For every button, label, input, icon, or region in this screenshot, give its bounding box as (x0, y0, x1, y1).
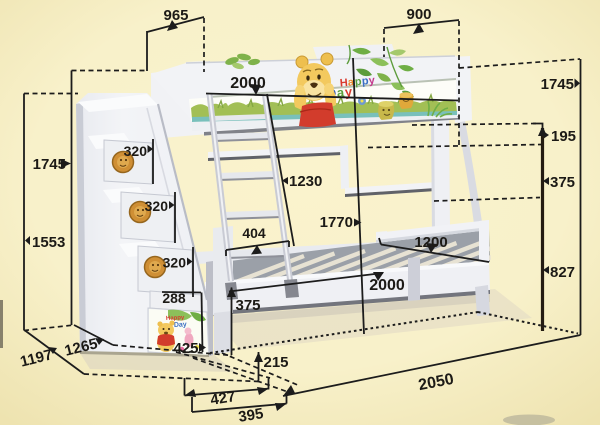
svg-text:Day: Day (174, 321, 187, 329)
svg-text:1745: 1745 (541, 76, 574, 93)
svg-text:375: 375 (550, 174, 575, 191)
svg-text:1745: 1745 (33, 156, 66, 173)
svg-text:395: 395 (237, 405, 264, 425)
svg-text:320: 320 (145, 198, 169, 214)
svg-text:2000: 2000 (230, 75, 266, 92)
svg-text:965: 965 (163, 7, 188, 24)
svg-text:320: 320 (163, 255, 187, 271)
svg-text:404: 404 (242, 225, 266, 241)
svg-text:1553: 1553 (32, 234, 65, 251)
svg-text:900: 900 (406, 6, 431, 23)
svg-text:2000: 2000 (369, 277, 405, 294)
svg-text:375: 375 (235, 297, 260, 314)
svg-text:320: 320 (124, 143, 148, 159)
svg-text:215: 215 (263, 354, 288, 371)
svg-text:195: 195 (551, 128, 576, 145)
svg-text:1200: 1200 (414, 234, 447, 251)
svg-text:1230: 1230 (289, 173, 322, 190)
svg-text:1770: 1770 (320, 214, 353, 231)
svg-text:288: 288 (162, 290, 186, 306)
svg-text:827: 827 (550, 264, 575, 281)
